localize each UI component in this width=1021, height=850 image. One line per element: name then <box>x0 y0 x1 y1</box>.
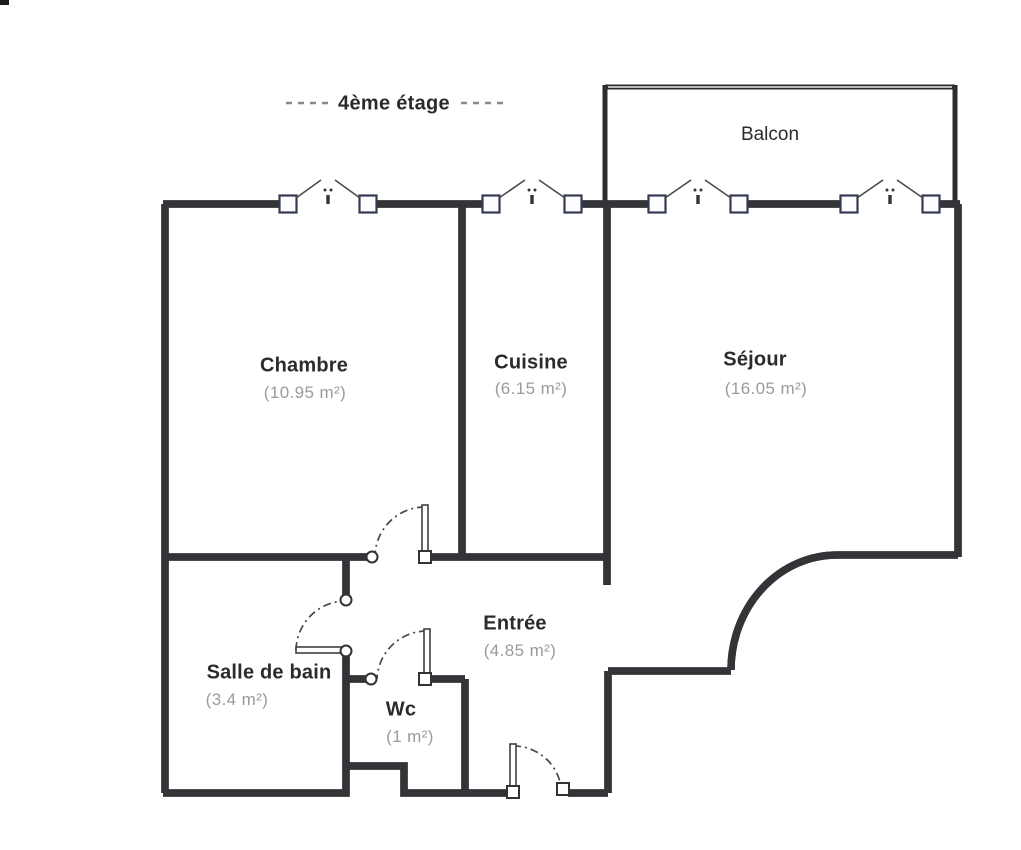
walls <box>163 204 960 793</box>
room-area-chambre: (10.95 m²) <box>264 383 346 403</box>
room-name-entree: Entrée <box>483 613 546 636</box>
jamb-post-bain <box>341 595 352 606</box>
hinge-post-bain <box>341 646 352 657</box>
room-name-sejour: Séjour <box>723 349 786 372</box>
room-area-entree: (4.85 m²) <box>484 641 557 661</box>
room-area-sejour: (16.05 m²) <box>725 379 807 399</box>
room-area-cuisine: (6.15 m²) <box>495 379 568 399</box>
door-leaf-wc <box>424 629 430 675</box>
door-swing-icon-wc <box>377 631 427 679</box>
casement-window-icon <box>483 180 582 213</box>
room-area-salle-de-bain: (3.4 m²) <box>206 690 269 710</box>
door-leaf-chambre <box>422 505 428 553</box>
floor-plan-drawing <box>0 0 1021 850</box>
casement-window-icon <box>280 180 377 213</box>
hinge-square-entree <box>507 786 519 798</box>
hinge-square-chambre <box>419 551 431 563</box>
door-leaf-entree <box>510 744 516 788</box>
jamb-post-chambre <box>367 552 378 563</box>
room-name-wc: Wc <box>386 699 416 722</box>
door-swing-icon-chambre <box>375 507 425 557</box>
door-swing-icon-bain <box>296 601 346 650</box>
floor-title: 4ème étage <box>338 93 450 116</box>
room-area-wc: (1 m²) <box>386 727 434 747</box>
room-name-salle-de-bain: Salle de bain <box>207 662 332 685</box>
hinge-square-wc <box>419 673 431 685</box>
door-posts <box>341 551 570 798</box>
door-leaf-bain <box>296 647 344 653</box>
floor-plan: 4ème étage Balcon Chambre (10.95 m²) Cui… <box>0 0 1021 850</box>
door-swing-icon-entree <box>513 746 561 787</box>
room-name-chambre: Chambre <box>260 355 348 378</box>
scan-artifact <box>0 0 9 5</box>
jamb-square-entree <box>557 783 569 795</box>
casement-window-icon <box>841 180 940 213</box>
room-name-cuisine: Cuisine <box>494 352 568 375</box>
casement-window-icon <box>649 180 748 213</box>
balcony-label: Balcon <box>741 124 799 146</box>
jamb-post-wc <box>366 674 377 685</box>
